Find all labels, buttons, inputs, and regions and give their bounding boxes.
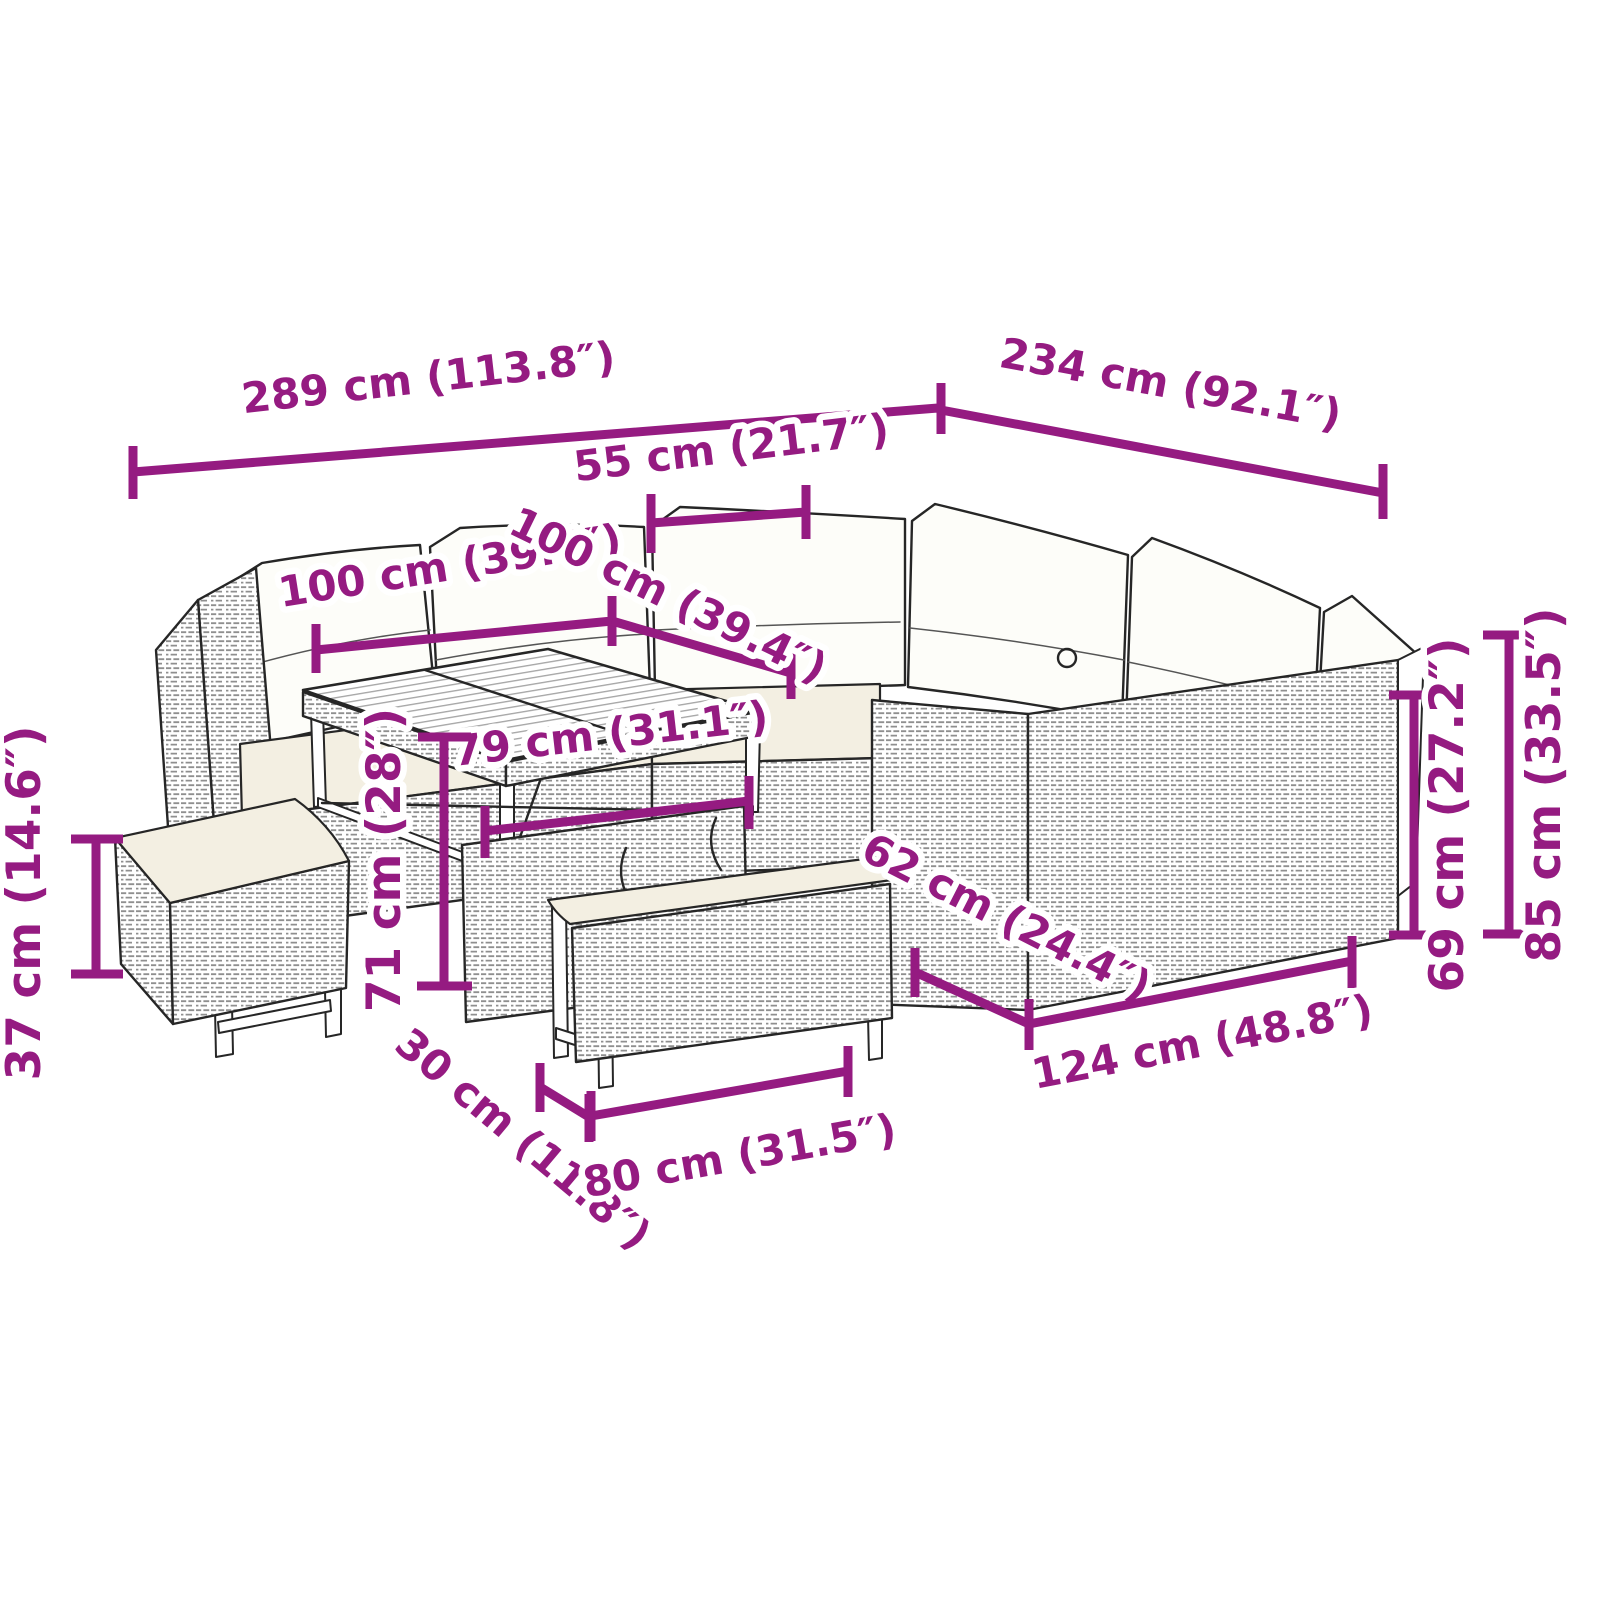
furniture-dimension-drawing: 289 cm (113.8″) 234 cm (92.1″) 55 cm (21… xyxy=(0,0,1600,1600)
dim-total-height-label: 85 cm (33.5″) xyxy=(1517,608,1572,963)
table-leg xyxy=(311,711,326,807)
dim-bench-length-label: 80 cm (31.5″) xyxy=(579,1104,900,1207)
bench-left xyxy=(115,799,349,1057)
dimension-diagram: 289 cm (113.8″) 234 cm (92.1″) 55 cm (21… xyxy=(0,0,1600,1600)
dim-sofa-section-length-label: 124 cm (48.8″) xyxy=(1028,985,1377,1099)
dim-overall-width-label: 289 cm (113.8″) xyxy=(239,332,618,423)
dim-total-height: 85 cm (33.5″) xyxy=(1483,608,1572,963)
dim-overall-depth-label: 234 cm (92.1″) xyxy=(996,328,1345,439)
dim-bench-height: 37 cm (14.6″) xyxy=(0,726,123,1081)
dim-bench-length: 80 cm (31.5″) xyxy=(579,1046,900,1207)
sofa-right-base xyxy=(872,647,1424,1010)
dim-seat-back-height-label: 69 cm (27.2″) xyxy=(1420,638,1475,993)
dim-corner-section-width-label: 55 cm (21.7″) xyxy=(571,404,892,491)
dim-overall-depth: 234 cm (92.1″) xyxy=(941,328,1383,519)
dim-bench-height-label: 37 cm (14.6″) xyxy=(0,726,52,1081)
dim-table-height-label: 71 cm (28″) xyxy=(357,708,412,1012)
bench-front xyxy=(548,858,892,1088)
